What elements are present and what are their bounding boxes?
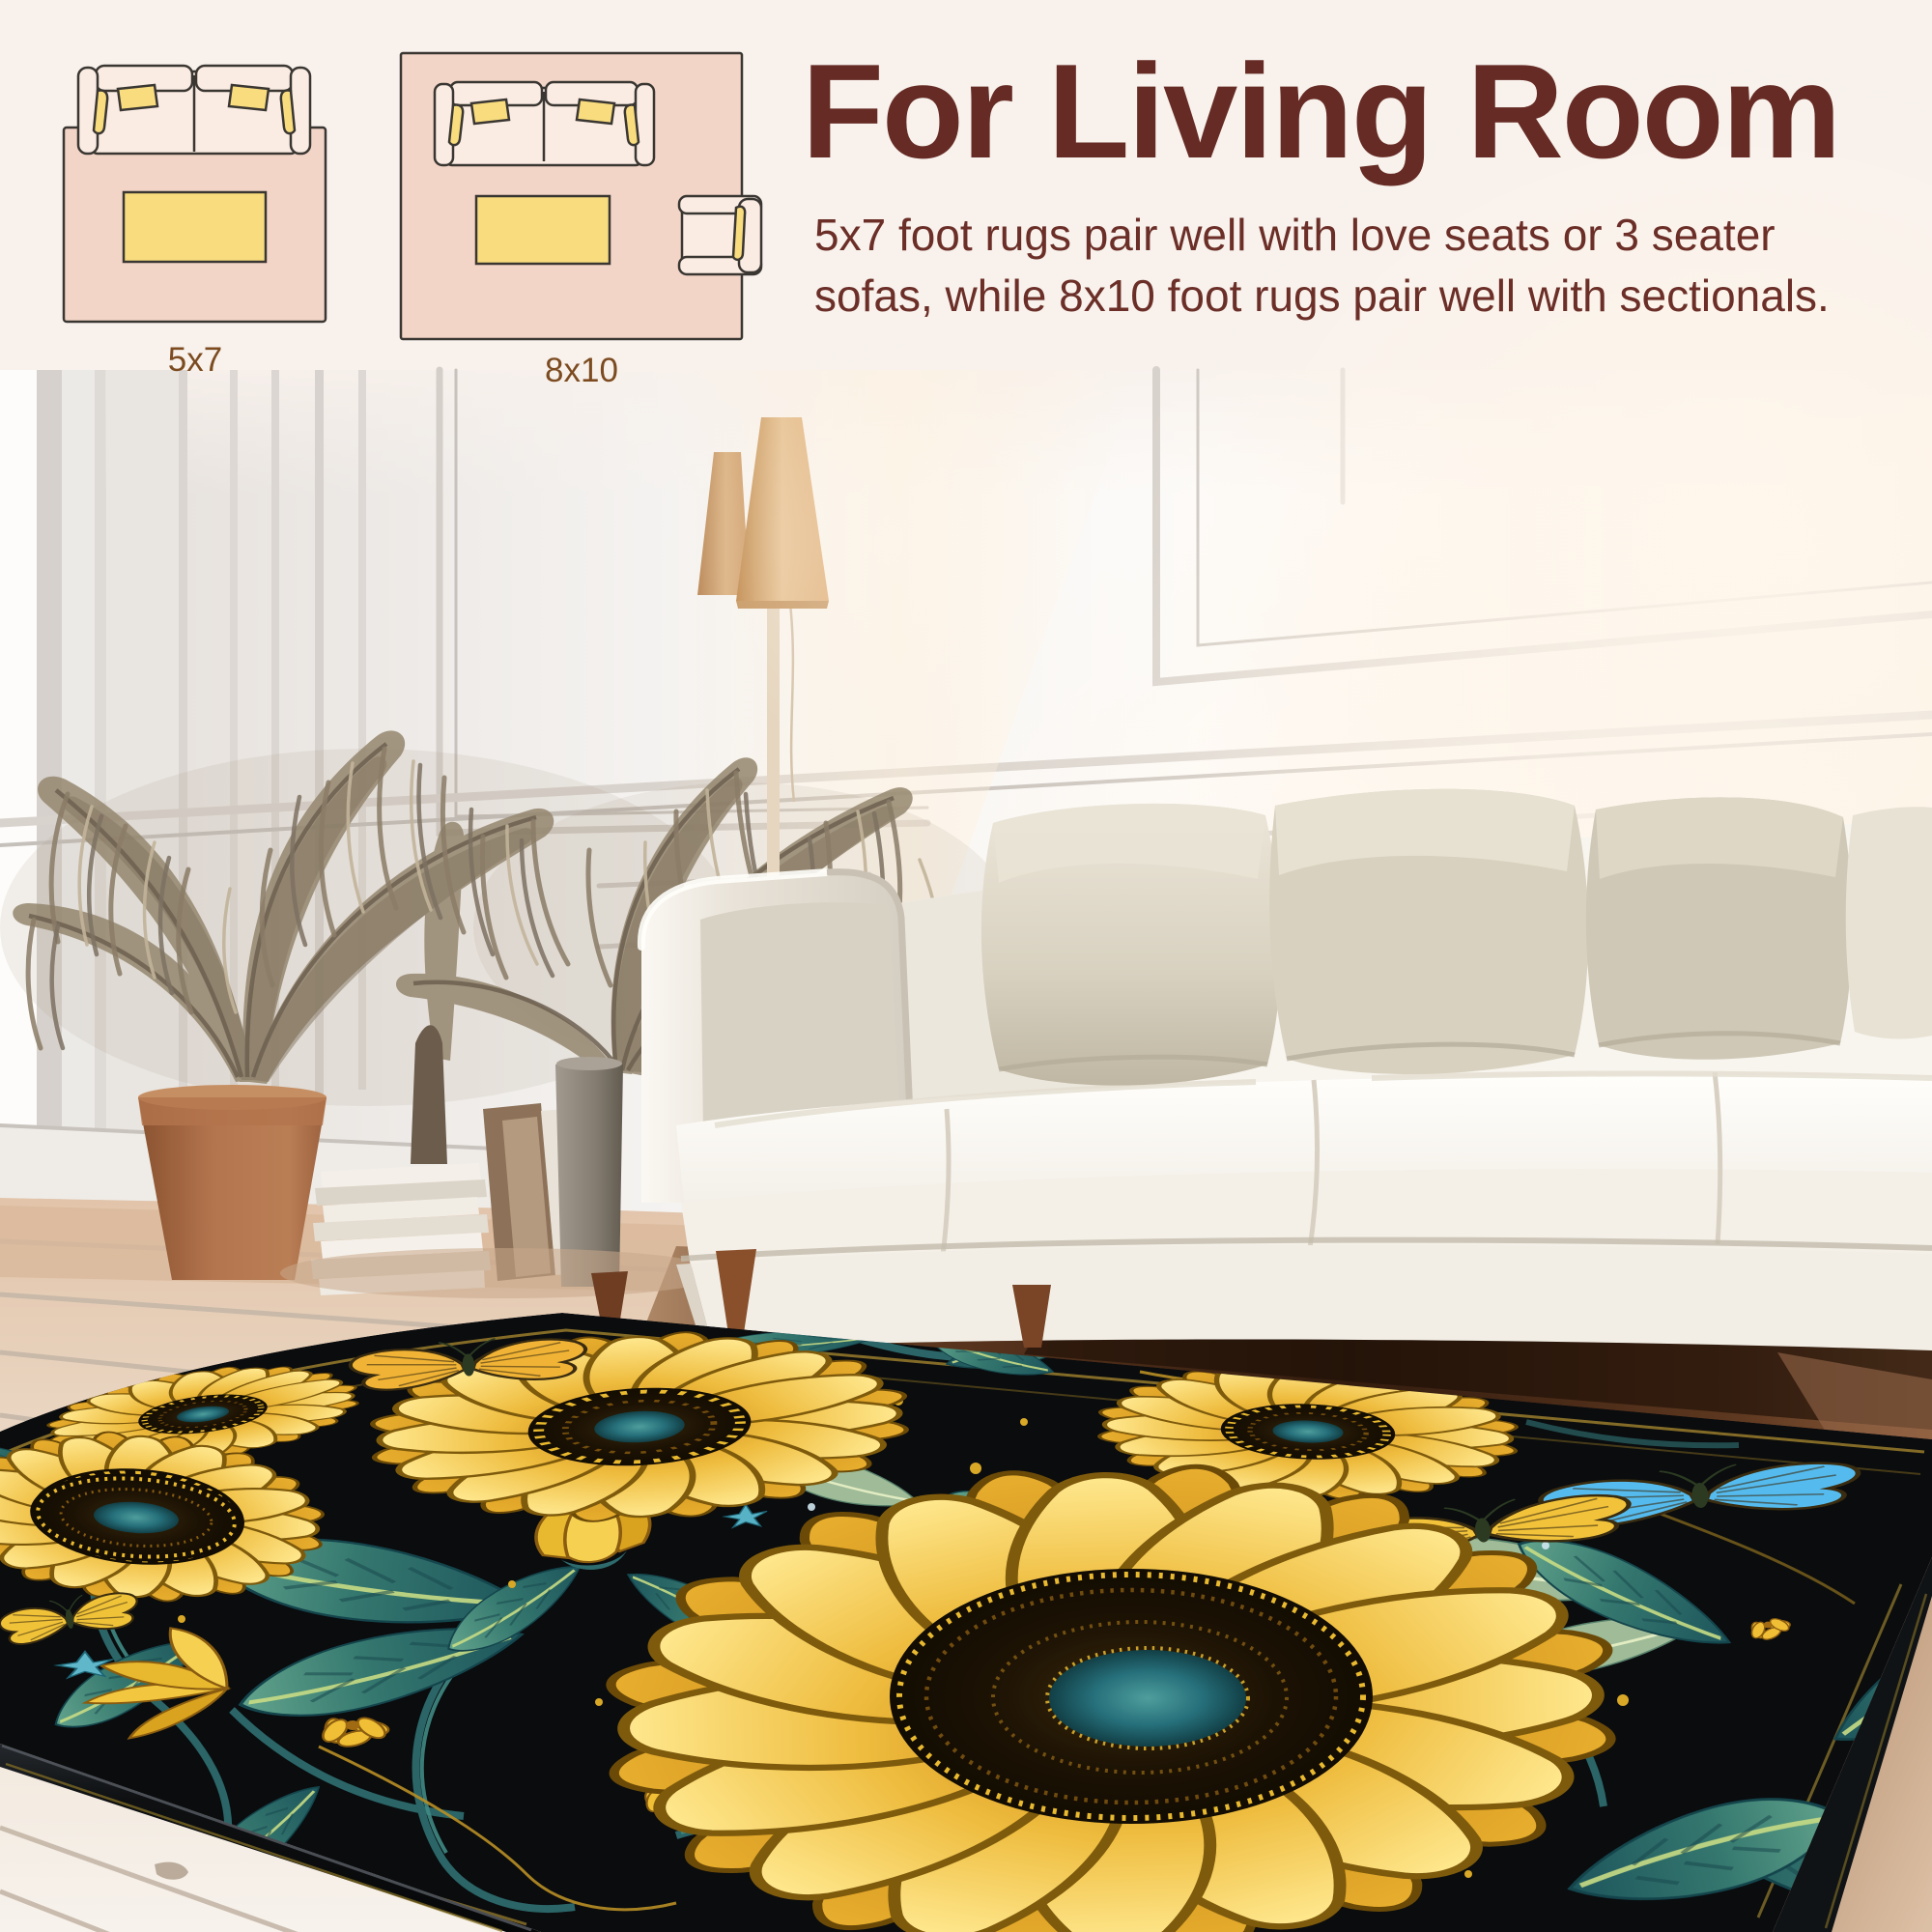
svg-text:8x10: 8x10 [545, 352, 618, 389]
svg-text:5x7: 5x7 [168, 341, 222, 379]
